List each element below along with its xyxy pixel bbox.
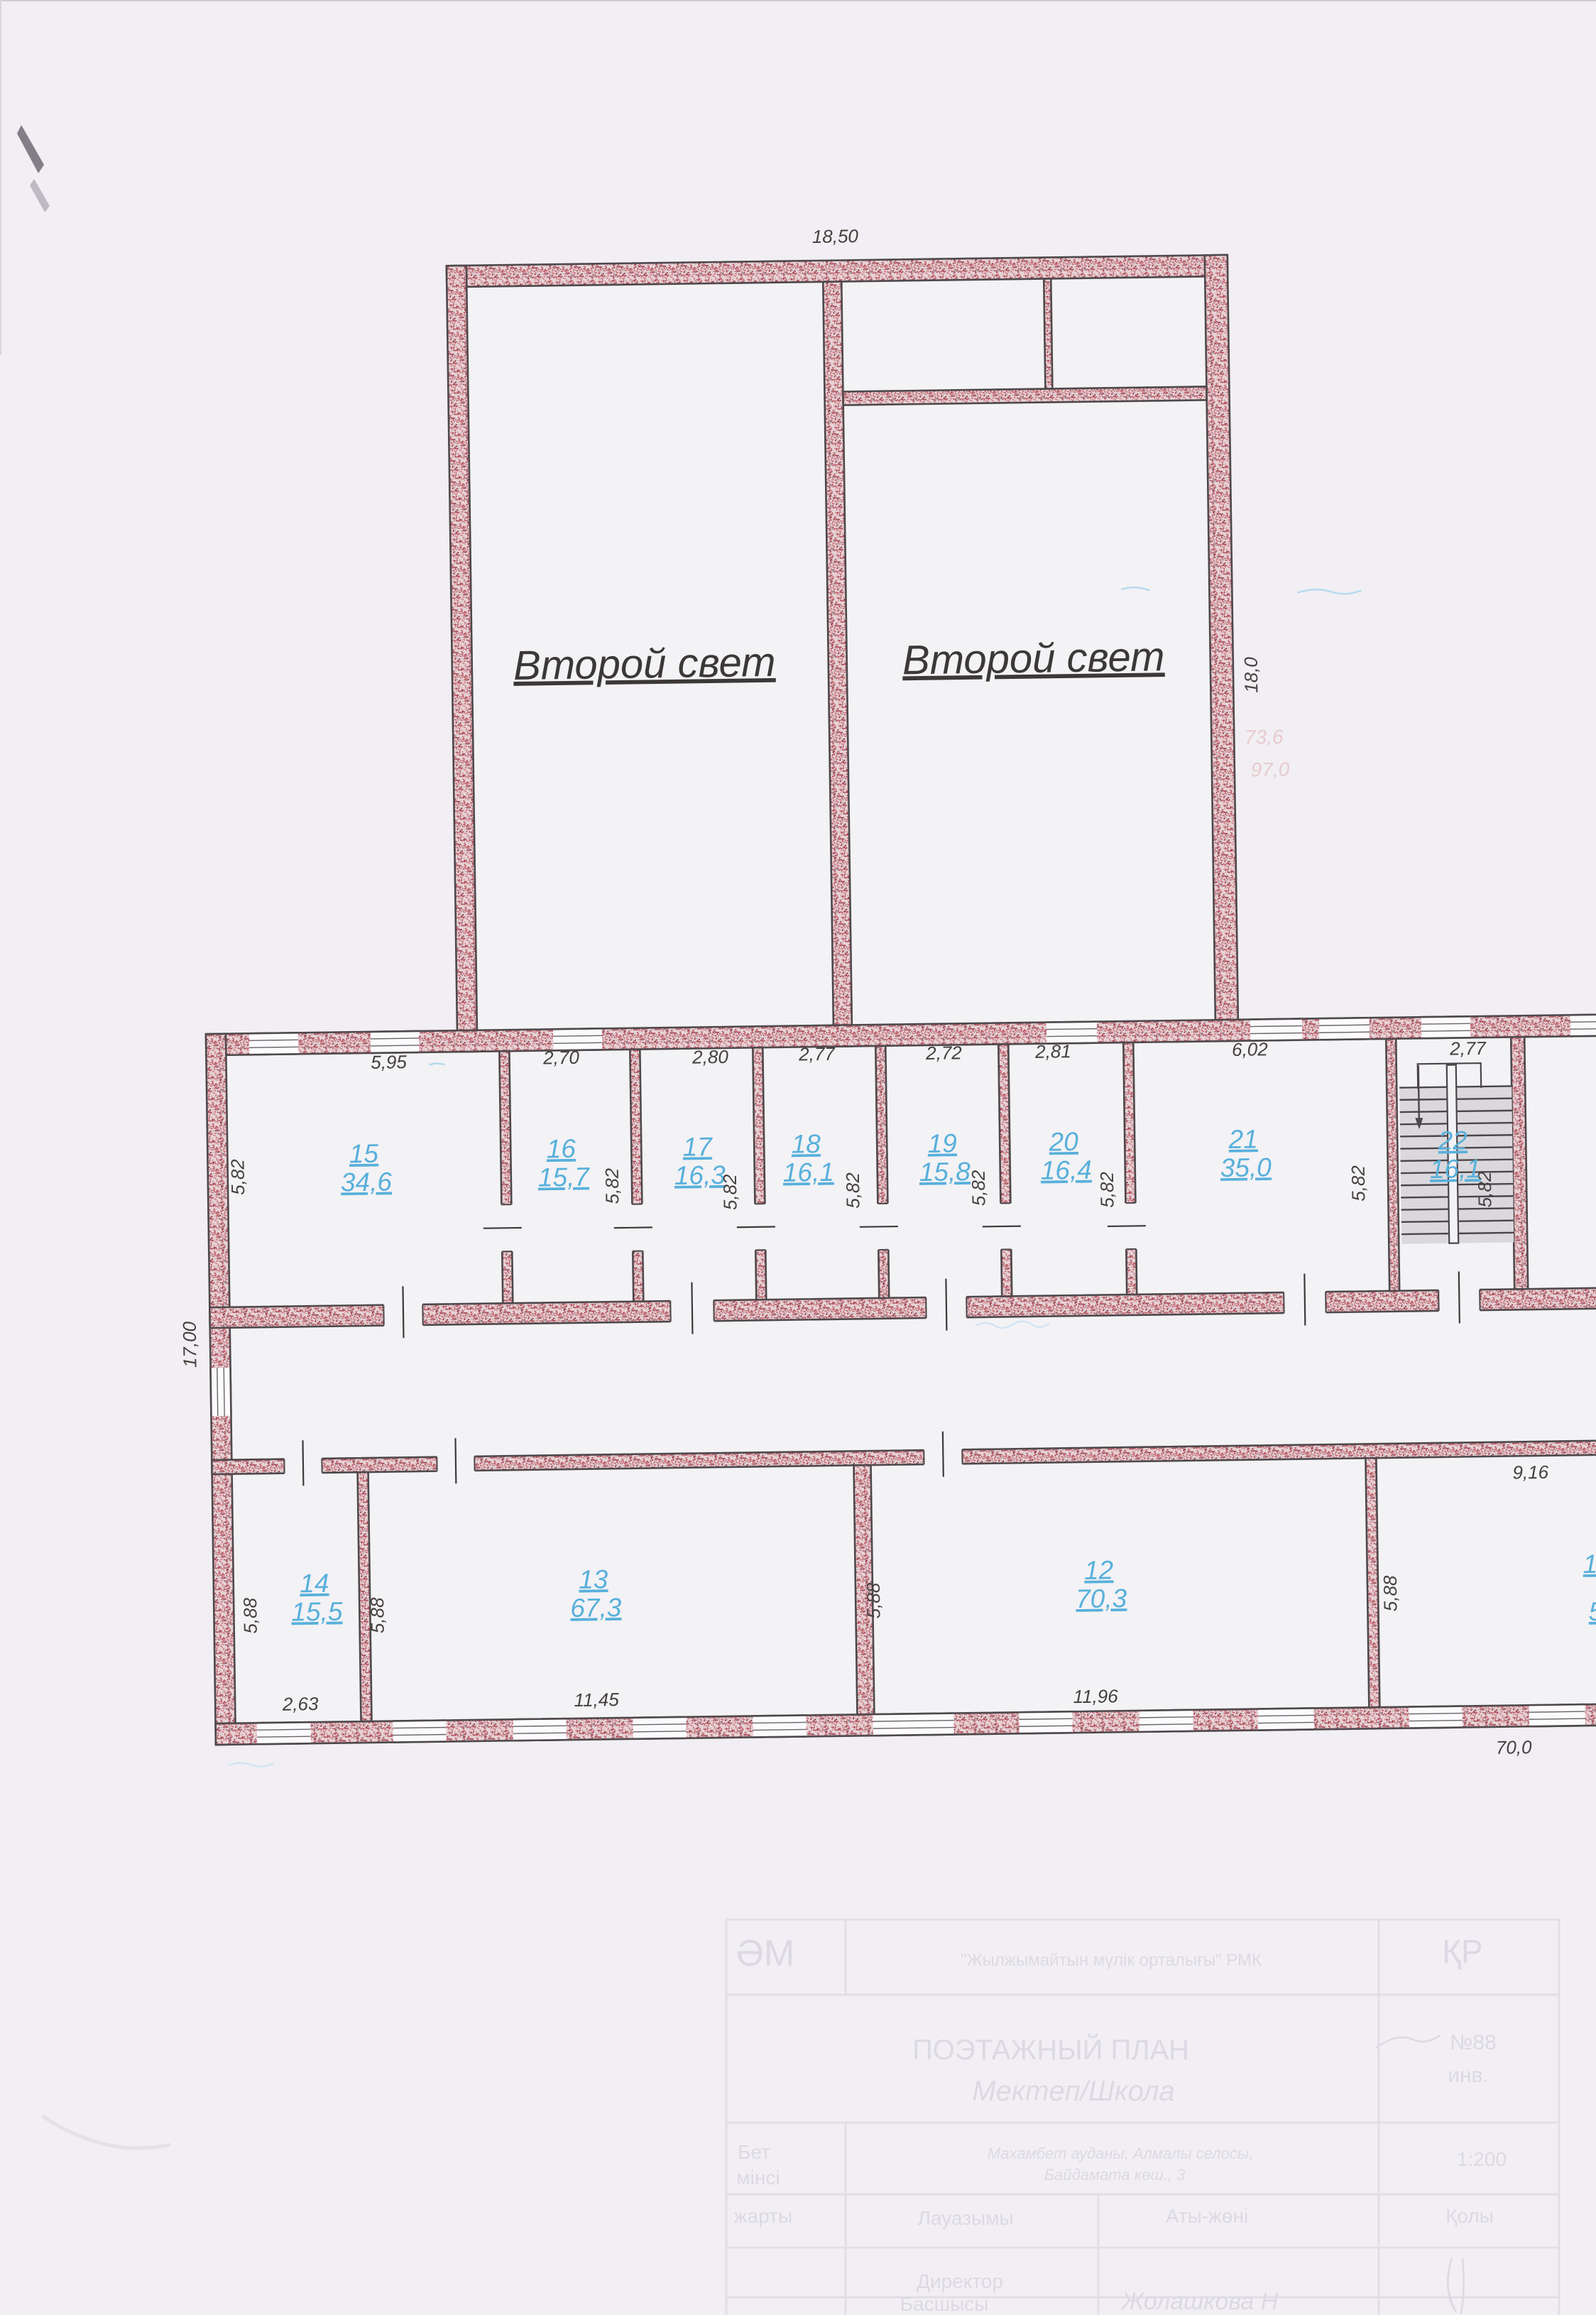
svg-text:2,77: 2,77 bbox=[1449, 1037, 1487, 1060]
svg-text:18,0: 18,0 bbox=[1240, 656, 1262, 693]
svg-text:16,1: 16,1 bbox=[782, 1157, 834, 1187]
svg-text:2,77: 2,77 bbox=[798, 1043, 836, 1065]
svg-text:Второй свет: Второй свет bbox=[902, 633, 1165, 683]
svg-text:17,00: 17,00 bbox=[179, 1321, 201, 1368]
svg-text:70,3: 70,3 bbox=[1076, 1584, 1127, 1613]
svg-text:15,8: 15,8 bbox=[919, 1157, 971, 1187]
svg-text:5,88: 5,88 bbox=[239, 1597, 261, 1634]
svg-text:5,88: 5,88 bbox=[863, 1582, 885, 1619]
svg-text:5,95: 5,95 bbox=[371, 1051, 408, 1073]
svg-text:16,4: 16,4 bbox=[1040, 1155, 1092, 1185]
svg-text:5,82: 5,82 bbox=[842, 1172, 864, 1209]
svg-text:35,0: 35,0 bbox=[1220, 1153, 1272, 1182]
svg-text:5,88: 5,88 bbox=[1379, 1575, 1401, 1612]
svg-text:инв.: инв. bbox=[1448, 2064, 1489, 2087]
svg-text:15,7: 15,7 bbox=[538, 1162, 591, 1192]
svg-text:97,0: 97,0 bbox=[1250, 758, 1289, 781]
svg-text:"Жылжымайтын мүлік орталығы" Р: "Жылжымайтын мүлік орталығы" РМК bbox=[961, 1951, 1262, 1970]
svg-text:ӘМ: ӘМ bbox=[736, 1933, 794, 1974]
svg-text:Махамбет ауданы, Алмалы селосы: Махамбет ауданы, Алмалы селосы, bbox=[988, 2145, 1253, 2162]
svg-text:5,82: 5,82 bbox=[226, 1158, 248, 1195]
svg-text:6,02: 6,02 bbox=[1232, 1038, 1269, 1060]
svg-text:2,80: 2,80 bbox=[692, 1046, 729, 1068]
svg-text:73,6: 73,6 bbox=[1245, 726, 1284, 748]
svg-text:5,82: 5,82 bbox=[1348, 1165, 1370, 1202]
svg-text:18: 18 bbox=[791, 1129, 821, 1159]
svg-text:Мектеп/Школа: Мектеп/Школа bbox=[972, 2076, 1174, 2107]
svg-text:2,63: 2,63 bbox=[282, 1693, 319, 1715]
svg-text:Второй свет: Второй свет bbox=[513, 639, 776, 689]
svg-text:67,3: 67,3 bbox=[570, 1593, 622, 1623]
svg-text:1:200: 1:200 bbox=[1457, 2148, 1507, 2170]
svg-text:17: 17 bbox=[682, 1132, 713, 1162]
svg-text:19: 19 bbox=[927, 1128, 957, 1158]
svg-text:15: 15 bbox=[349, 1139, 378, 1169]
svg-text:34,6: 34,6 bbox=[341, 1167, 393, 1197]
svg-text:жарты: жарты bbox=[734, 2205, 792, 2227]
svg-text:5,82: 5,82 bbox=[968, 1170, 990, 1206]
svg-text:5,82: 5,82 bbox=[1096, 1171, 1118, 1208]
svg-text:Жолашкова Н: Жолашкова Н bbox=[1120, 2288, 1279, 2315]
svg-text:2,72: 2,72 bbox=[925, 1042, 963, 1064]
svg-text:2,81: 2,81 bbox=[1034, 1040, 1071, 1062]
svg-text:№88: №88 bbox=[1450, 2031, 1497, 2054]
svg-text:16,1: 16,1 bbox=[1430, 1154, 1482, 1184]
svg-text:16: 16 bbox=[546, 1134, 576, 1164]
svg-text:11,45: 11,45 bbox=[574, 1689, 619, 1711]
svg-text:Бет: Бет bbox=[738, 2141, 770, 2163]
svg-text:11,96: 11,96 bbox=[1073, 1685, 1118, 1707]
svg-text:2,70: 2,70 bbox=[542, 1047, 580, 1069]
svg-text:21: 21 bbox=[1228, 1124, 1258, 1154]
svg-text:11: 11 bbox=[1583, 1549, 1596, 1579]
svg-text:мінсі: мінсі bbox=[736, 2167, 780, 2189]
svg-text:52,4: 52,4 bbox=[1588, 1596, 1596, 1626]
svg-text:Басшысы: Басшысы bbox=[900, 2293, 989, 2315]
svg-text:Аты-жөні: Аты-жөні bbox=[1166, 2205, 1248, 2227]
svg-text:13: 13 bbox=[579, 1564, 608, 1594]
svg-text:ПОЭТАЖНЫЙ ПЛАН: ПОЭТАЖНЫЙ ПЛАН bbox=[912, 2033, 1189, 2066]
svg-text:Директор: Директор bbox=[917, 2270, 1003, 2292]
svg-text:Лауазымы: Лауазымы bbox=[918, 2207, 1014, 2229]
svg-text:70,0: 70,0 bbox=[1496, 1736, 1533, 1758]
svg-text:14: 14 bbox=[300, 1569, 329, 1598]
svg-text:ҚР: ҚР bbox=[1442, 1933, 1482, 1970]
svg-text:18,50: 18,50 bbox=[812, 225, 859, 247]
svg-text:Қолы: Қолы bbox=[1445, 2205, 1494, 2227]
svg-text:12: 12 bbox=[1084, 1555, 1114, 1585]
svg-text:16,3: 16,3 bbox=[674, 1160, 726, 1190]
svg-text:5,82: 5,82 bbox=[719, 1174, 741, 1211]
svg-text:5,88: 5,88 bbox=[366, 1597, 388, 1634]
svg-text:20: 20 bbox=[1048, 1127, 1078, 1157]
svg-text:5,82: 5,82 bbox=[601, 1167, 623, 1204]
svg-text:15,5: 15,5 bbox=[291, 1597, 343, 1627]
svg-text:22: 22 bbox=[1437, 1126, 1467, 1155]
svg-text:9,16: 9,16 bbox=[1512, 1461, 1549, 1483]
svg-text:Байдамата көш., 3: Байдамата көш., 3 bbox=[1044, 2166, 1186, 2184]
